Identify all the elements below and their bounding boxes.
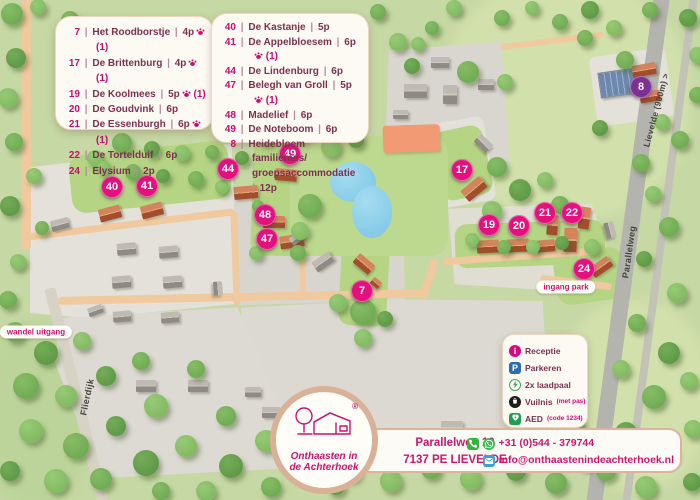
email-icon <box>483 455 495 467</box>
unit-number: 20 <box>60 102 80 117</box>
house-roof <box>478 79 494 90</box>
unit-capacity: 4p <box>183 27 195 38</box>
legend-unit-row: 22 | De Tortelduif | 6p <box>60 148 207 163</box>
house-roof <box>113 310 132 323</box>
tree <box>404 58 420 74</box>
pet-allowed-icon <box>196 27 205 36</box>
unit-number: 24 <box>60 164 80 179</box>
tree <box>144 394 168 418</box>
tree <box>465 233 479 247</box>
tree <box>6 48 26 68</box>
facility-label: Parkeren <box>525 363 561 373</box>
unit-name: De Noteboom <box>248 124 313 135</box>
tree <box>671 131 689 149</box>
tree <box>196 481 216 500</box>
house-roof <box>116 242 136 256</box>
footpath <box>419 258 440 300</box>
tree <box>584 239 600 255</box>
tree <box>26 168 42 184</box>
walk-exit-label: wandel uitgang <box>0 326 72 339</box>
holiday-home-roof <box>477 239 500 253</box>
pet-allowed-icon <box>254 95 263 104</box>
pet-allowed-icon <box>188 58 197 67</box>
legend-unit-row: 20 | De Goudvink | 6p <box>60 102 207 117</box>
contact-block: +31 (0)544 - 379744 info@onthaastenindea… <box>467 435 674 469</box>
tree <box>636 251 652 267</box>
tree <box>658 342 680 364</box>
unit-capacity: 6p <box>166 104 178 115</box>
tree <box>0 88 18 108</box>
map-marker-48[interactable]: 48 <box>254 204 276 226</box>
unit-name: De Essenburgh <box>92 119 165 130</box>
house-roof <box>213 281 223 296</box>
legend-unit-row: 47 | Belegh van Groll | 5p (1) <box>216 79 362 108</box>
registered-mark: ® <box>352 402 358 411</box>
tree <box>329 294 347 312</box>
tree <box>377 311 393 327</box>
tree <box>645 186 661 202</box>
pet-count: (1) <box>191 89 206 100</box>
tree <box>350 299 376 325</box>
tree <box>34 341 58 365</box>
map-marker-7[interactable]: 7 <box>351 280 373 302</box>
tree <box>632 154 650 172</box>
house-roof <box>603 221 617 239</box>
tree <box>152 482 170 500</box>
unit-capacity: 12p <box>260 183 277 194</box>
tree <box>290 245 306 261</box>
facility-row: AED(code 1234) <box>509 410 582 427</box>
facility-label: 2x laadpaal <box>525 380 571 390</box>
unit-name: Belegh van Groll <box>248 80 327 91</box>
footpath <box>22 0 31 250</box>
map-marker-21[interactable]: 21 <box>534 202 556 224</box>
map-marker-40[interactable]: 40 <box>101 176 123 198</box>
park-entrance-label: ingang park <box>536 281 595 294</box>
tree <box>635 476 657 498</box>
legend-unit-row: 24 | Elysium | 2p <box>60 164 207 179</box>
park-logo: ® Onthaasten in de Achterhoek <box>270 386 378 494</box>
tree <box>555 236 569 250</box>
map-marker-20[interactable]: 20 <box>508 215 530 237</box>
facility-label: Vuilnis <box>525 397 553 407</box>
unit-number: 48 <box>216 109 236 124</box>
pet-count: (1) <box>96 73 108 84</box>
unit-number: 40 <box>216 21 236 36</box>
facility-row: iReceptie <box>509 342 582 359</box>
tree <box>261 477 281 497</box>
house-roof <box>161 311 180 324</box>
house-roof <box>111 275 131 289</box>
tree <box>680 372 698 390</box>
unit-number: 47 <box>216 79 236 94</box>
facility-row: Vuilnis(met pas) <box>509 393 582 410</box>
unit-capacity: 4p <box>175 58 187 69</box>
unit-number: 44 <box>216 65 236 80</box>
tree <box>526 240 540 254</box>
house-roof <box>188 380 208 392</box>
unit-number: 22 <box>60 148 80 163</box>
unit-capacity: 5p <box>340 80 352 91</box>
legend-unit-row: 17 | De Brittenburg | 4p (1) <box>60 56 207 87</box>
parking-icon: P <box>509 362 521 374</box>
tree <box>0 196 20 216</box>
unit-name: De Goudvink <box>92 104 154 115</box>
pet-allowed-icon <box>192 119 201 128</box>
pet-count: (1) <box>263 95 278 106</box>
tree <box>0 291 17 309</box>
unit-name: Heidebloem familiehuis/ groepsaccommodat… <box>248 139 355 179</box>
tree <box>354 329 372 347</box>
unit-name: De Lindenburg <box>248 66 319 77</box>
tree <box>616 51 634 69</box>
tree <box>606 20 622 36</box>
whatsapp-icon <box>483 438 495 450</box>
pet-count: (1) <box>96 135 108 146</box>
tree <box>552 14 568 30</box>
tree <box>106 416 126 436</box>
facility-row: 2x laadpaal <box>509 376 582 393</box>
orange-field <box>383 124 441 153</box>
facility-note: (code 1234) <box>547 415 583 422</box>
unit-number: 49 <box>216 123 236 138</box>
map-marker-24[interactable]: 24 <box>573 258 595 280</box>
pet-count: (1) <box>263 51 278 62</box>
tree <box>30 0 46 15</box>
unit-name: De Kastanje <box>248 22 305 33</box>
legend-facilities-panel: iReceptiePParkeren2x laadpaalVuilnis(met… <box>502 334 588 428</box>
unit-capacity: 6p <box>178 119 190 130</box>
tree <box>380 470 402 492</box>
unit-number: 41 <box>216 36 236 51</box>
unit-name: Het Roodborstje <box>92 27 170 38</box>
unit-capacity: 6p <box>326 124 338 135</box>
tree <box>679 9 697 27</box>
legend-unit-row: 44 | De Lindenburg | 6p <box>216 65 362 80</box>
legend-unit-row: 19 | De Koolmees | 5p (1) <box>60 87 207 102</box>
tree <box>187 360 205 378</box>
tree <box>642 385 666 409</box>
legend-unit-row: 8 | Heidebloem familiehuis/ groepsaccomm… <box>216 138 362 196</box>
house-roof <box>158 245 178 259</box>
tree <box>298 194 322 218</box>
tree <box>612 360 630 378</box>
house-roof <box>404 84 427 98</box>
legend-units-panel-1: 7 | Het Roodborstje | 4p (1)17 | De Brit… <box>55 16 214 130</box>
tree <box>1 3 23 25</box>
tree <box>133 450 159 476</box>
legend-unit-row: 21 | De Essenburgh | 6p (1) <box>60 117 207 148</box>
tree <box>659 217 679 237</box>
tree <box>642 2 658 18</box>
tree <box>577 30 593 46</box>
house-roof <box>136 380 156 392</box>
unit-name: De Brittenburg <box>92 58 162 69</box>
tree <box>525 1 539 15</box>
tree <box>667 283 687 303</box>
tree <box>684 420 700 438</box>
pet-allowed-icon <box>254 51 263 60</box>
tree <box>5 133 23 151</box>
logo-house-drawing <box>292 404 356 446</box>
house-roof <box>245 387 261 397</box>
legend-unit-row: 7 | Het Roodborstje | 4p (1) <box>60 25 207 56</box>
tree <box>216 406 236 426</box>
legend-units-panel-2: 40 | De Kastanje | 5p41 | De Appelbloese… <box>211 13 369 143</box>
park-map: 40414449484771719202122248 wandel uitgan… <box>0 0 700 500</box>
unit-number: 21 <box>60 117 80 132</box>
aed-icon <box>509 413 521 425</box>
unit-capacity: 6p <box>344 37 356 48</box>
info-icon: i <box>509 345 521 357</box>
unit-number: 7 <box>60 25 80 40</box>
legend-unit-row: 41 | De Appelbloesem | 6p (1) <box>216 36 362 65</box>
unit-capacity: 6p <box>331 66 343 77</box>
tree <box>689 47 700 63</box>
tree <box>494 10 510 26</box>
tree <box>683 473 700 491</box>
unit-number: 8 <box>216 138 236 153</box>
legend-unit-row: 40 | De Kastanje | 5p <box>216 21 362 36</box>
pet-allowed-icon <box>182 89 191 98</box>
tree <box>370 4 386 20</box>
legend-unit-row: 49 | De Noteboom | 6p <box>216 123 362 138</box>
tree <box>689 87 700 103</box>
unit-number: 17 <box>60 56 80 71</box>
pet-count: (1) <box>96 42 108 53</box>
logo-text-line2: de Achterhoek <box>276 462 372 473</box>
tree <box>509 179 531 201</box>
phone-number[interactable]: +31 (0)544 - 379744 <box>499 435 594 452</box>
tree <box>90 468 112 490</box>
map-marker-47[interactable]: 47 <box>256 228 278 250</box>
tree <box>175 435 197 457</box>
facility-row: PParkeren <box>509 359 582 376</box>
tree <box>581 1 599 19</box>
map-marker-8[interactable]: 8 <box>630 76 652 98</box>
unit-capacity: 5p <box>168 89 180 100</box>
tree <box>628 314 646 332</box>
tree <box>457 61 479 83</box>
tree <box>446 0 462 16</box>
map-marker-19[interactable]: 19 <box>478 214 500 236</box>
unit-capacity: 5p <box>318 22 330 33</box>
tree <box>13 373 39 399</box>
tree <box>55 385 77 407</box>
tree <box>487 157 507 177</box>
tree <box>497 240 511 254</box>
tree <box>44 469 68 493</box>
house-roof <box>443 85 457 104</box>
email-address[interactable]: info@onthaastenindeachterhoek.nl <box>499 452 674 469</box>
unit-name: Elysium <box>92 166 130 177</box>
tree <box>425 21 439 35</box>
map-marker-22[interactable]: 22 <box>561 202 583 224</box>
tree <box>10 254 26 270</box>
map-marker-17[interactable]: 17 <box>451 159 473 181</box>
tree <box>545 472 567 494</box>
tree <box>35 221 49 235</box>
unit-name: De Appelbloesem <box>248 37 332 48</box>
logo-text-line1: Onthaasten in <box>276 451 372 462</box>
phone-icon <box>467 438 479 450</box>
house-roof <box>162 275 182 289</box>
unit-number: 19 <box>60 87 80 102</box>
tree <box>411 37 425 51</box>
house-roof <box>431 57 449 68</box>
legend-unit-row: 48 | Madelief | 6p <box>216 109 362 124</box>
unit-capacity: 2p <box>143 166 155 177</box>
tree <box>592 120 608 136</box>
tree <box>291 222 309 240</box>
tree <box>219 454 243 478</box>
tree <box>132 352 150 370</box>
tree <box>537 172 553 188</box>
tree <box>497 74 513 90</box>
unit-name: De Tortelduif <box>92 150 153 161</box>
tree <box>73 332 91 350</box>
unit-capacity: 6p <box>301 110 313 121</box>
tree <box>19 419 43 443</box>
unit-name: De Koolmees <box>92 89 155 100</box>
tree <box>96 366 116 386</box>
unit-name: Madelief <box>248 110 288 121</box>
ev-charger-icon <box>509 379 521 391</box>
house-roof <box>393 110 408 119</box>
tree <box>389 33 407 51</box>
unit-capacity: 6p <box>166 150 178 161</box>
tree <box>0 461 20 481</box>
trash-icon <box>509 396 521 408</box>
tree <box>63 433 89 459</box>
facility-label: Receptie <box>525 346 560 356</box>
facility-label: AED <box>525 414 543 424</box>
facility-note: (met pas) <box>557 398 586 405</box>
